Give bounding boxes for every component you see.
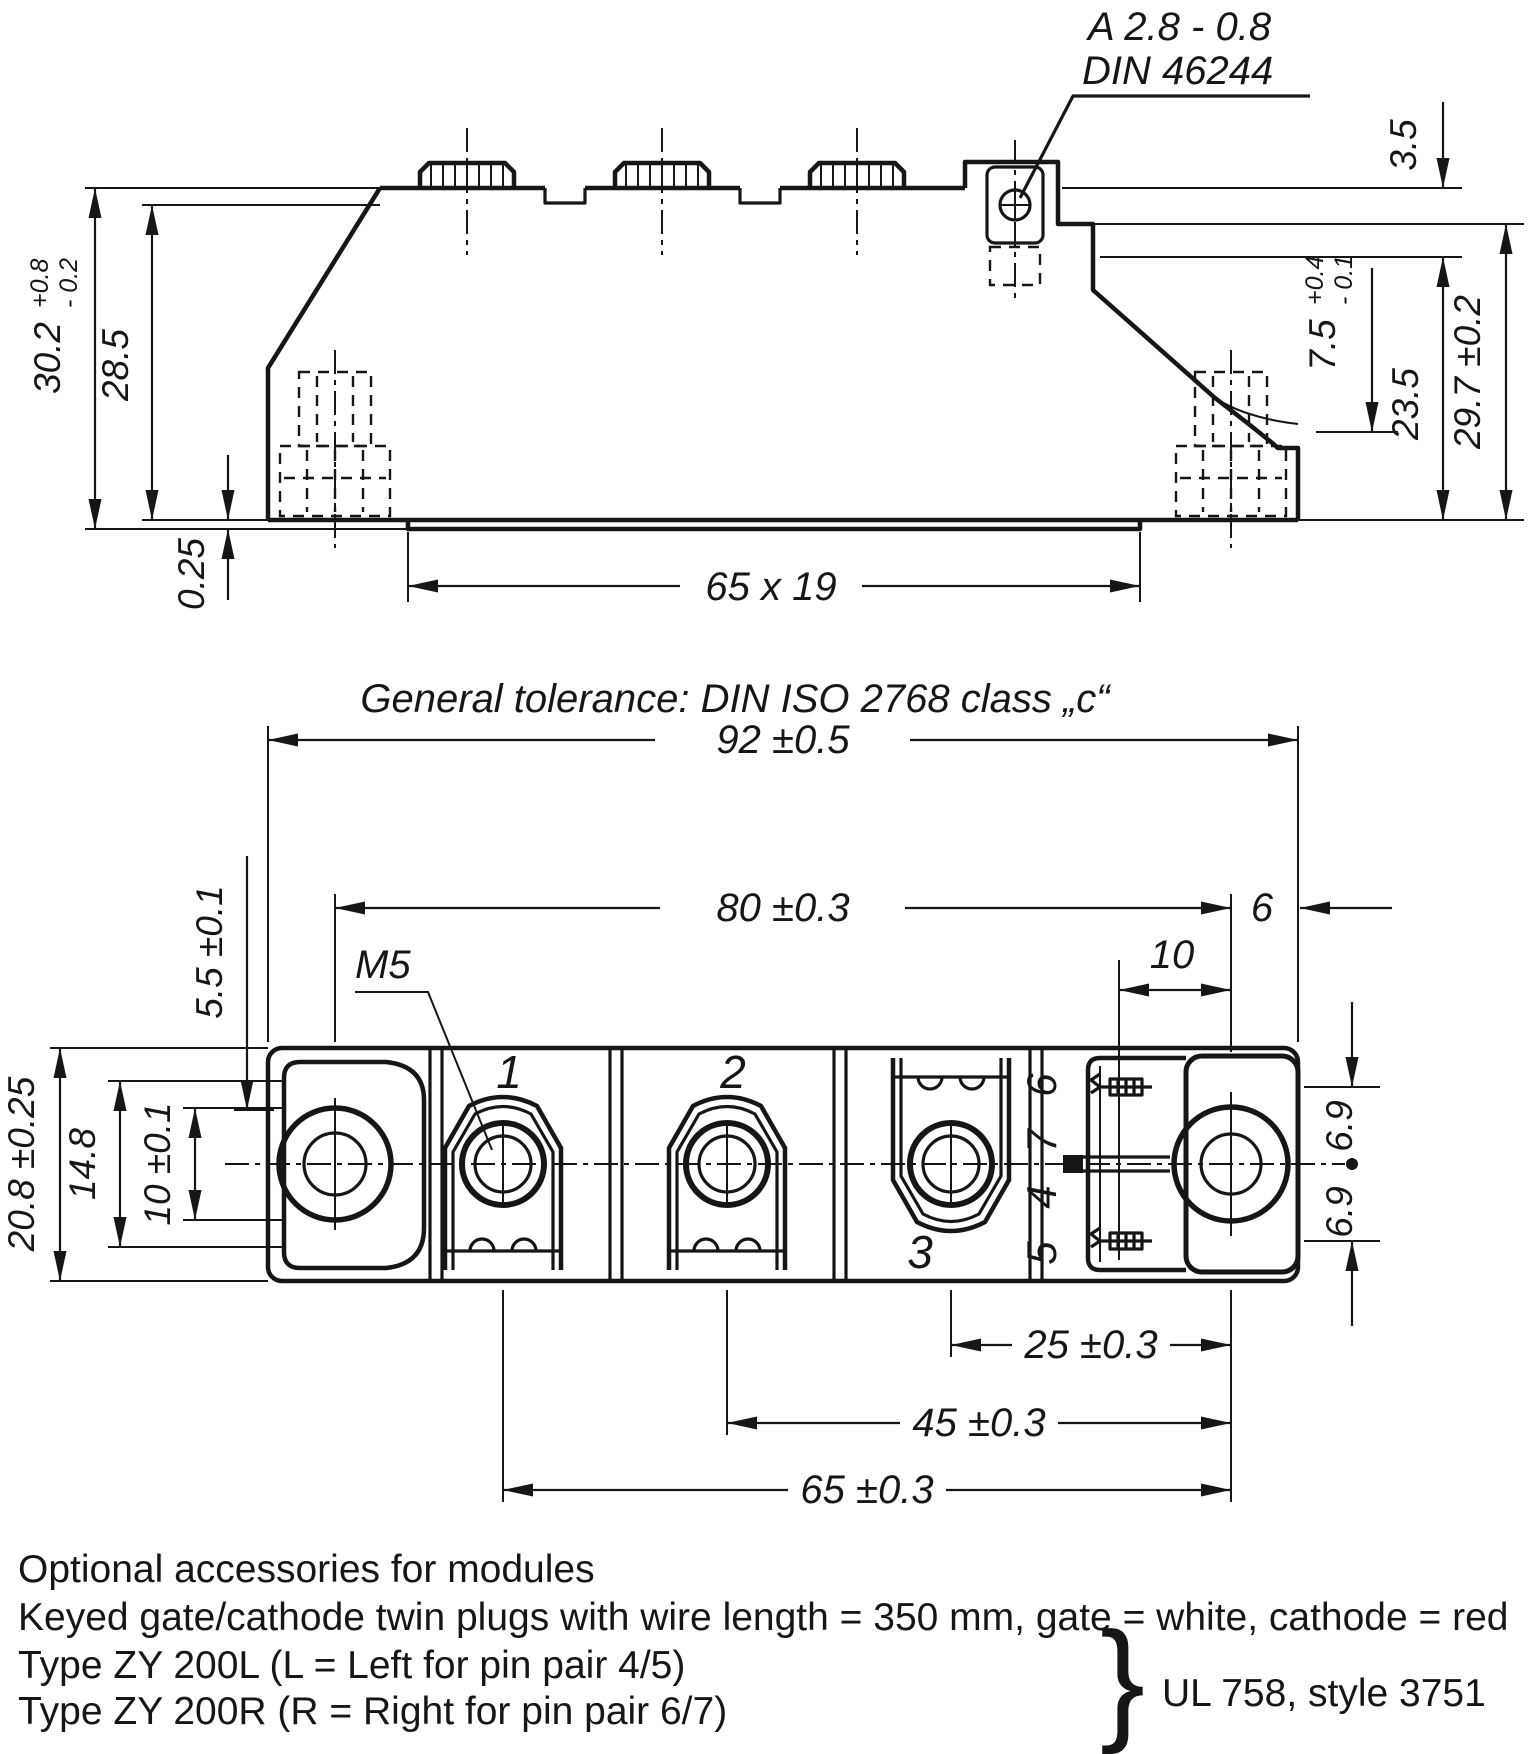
dim-ledge-height: 23.5: [1385, 257, 1450, 520]
note-brace: }: [1100, 1604, 1145, 1754]
side-top-notch-1: [545, 188, 585, 203]
dim-pin-up-value: 6.9: [1319, 1100, 1360, 1151]
dim-pitch-25: 25 ±0.3: [951, 1323, 1231, 1367]
note-line-3: Type ZY 200L (L = Left for pin pair 4/5): [18, 1644, 685, 1687]
dim-height-overall-tol-plus: +0.8: [26, 259, 54, 308]
terminal-1: 1: [445, 1046, 561, 1270]
dim-pin-row: 5.5 ±0.1: [189, 856, 254, 1110]
plan-extension-lines: [50, 726, 1380, 1502]
side-extension-lines: [85, 188, 1524, 602]
side-potting-line: [1212, 396, 1298, 424]
dim-hole-spacing: 80 ±0.3: [335, 886, 1231, 930]
terminal-2-label: 2: [719, 1046, 746, 1098]
general-tolerance-note: General tolerance: DIN ISO 2768 class „c…: [360, 677, 1112, 721]
dim-pitch-65: 65 ±0.3: [503, 1468, 1231, 1512]
callout-line1: A 2.8 - 0.8: [1086, 5, 1272, 49]
dim-pitch-25-value: 25 ±0.3: [1023, 1323, 1157, 1367]
dim-height-overall-value: 30.2: [27, 322, 68, 394]
pin-5-mark: [1100, 1233, 1152, 1249]
note-line-2: Keyed gate/cathode twin plugs with wire …: [18, 1596, 1509, 1639]
dim-height-inner-value: 28.5: [95, 329, 136, 402]
plan-view: 1 2 3: [1, 718, 1392, 1512]
dim-recess-depth-tol-minus: - 0.1: [1330, 255, 1358, 305]
note-line-4: Type ZY 200R (R = Right for pin pair 6/7…: [18, 1690, 727, 1733]
pin-6-label: 6: [1018, 1073, 1065, 1097]
pin-4-label: 4: [1018, 1185, 1065, 1208]
dim-baseplate-step: 0.25: [171, 455, 235, 610]
dim-hole-spacing-value: 80 ±0.3: [716, 886, 849, 930]
dim-height-total-value: 29.7 ±0.2: [1447, 295, 1488, 450]
terminal-clamp-springs: [470, 1239, 536, 1251]
dim-base-area-value: 65 x 19: [705, 565, 836, 609]
dim-slot-len: 14.8: [62, 1081, 127, 1247]
center-dot: [1346, 1158, 1358, 1170]
terminal-cap-1: [420, 128, 514, 255]
dim-width-overall-value: 92 ±0.5: [716, 718, 850, 762]
side-view: A 2.8 - 0.8 DIN 46244 30.2: [26, 5, 1524, 610]
dim-width-overall: 92 ±0.5: [268, 718, 1298, 762]
dim-pin-offset: 10: [1119, 933, 1231, 997]
tab-tip: [1063, 1155, 1083, 1173]
terminal-3: 3: [893, 1058, 1009, 1278]
terminal-cap-3: [810, 128, 904, 255]
technical-drawing-page: A 2.8 - 0.8 DIN 46244 30.2: [0, 0, 1538, 1754]
tab-callout: A 2.8 - 0.8 DIN 46244: [1020, 5, 1310, 198]
dim-recess-depth-tol-plus: +0.4: [1301, 256, 1329, 305]
dim-height-overall: 30.2 +0.8 - 0.2: [26, 188, 102, 529]
dim-baseplate-step-value: 0.25: [171, 538, 212, 610]
callout-leader: [1020, 96, 1073, 198]
dim-slot-width-value: 10 ±0.1: [137, 1102, 178, 1225]
notes-block: Optional accessories for modules Keyed g…: [18, 1548, 1509, 1754]
dim-pin-down-value: 6.9: [1319, 1186, 1360, 1237]
note-line-1: Optional accessories for modules: [18, 1548, 595, 1591]
pin-6-mark: [1100, 1079, 1152, 1095]
dim-pitch-45: 45 ±0.3: [727, 1401, 1231, 1445]
thread-label: M5: [355, 943, 411, 987]
dim-depth-overall-value: 20.8 ±0.25: [1, 1076, 42, 1252]
dim-slot-width: 10 ±0.1: [137, 1102, 202, 1225]
pin-7-label: 7: [1018, 1128, 1065, 1153]
dim-hole-edge-value: 6: [1251, 886, 1274, 930]
dim-pitch-45-value: 45 ±0.3: [912, 1401, 1045, 1445]
dim-ledge-height-value: 23.5: [1385, 368, 1426, 441]
dim-tab-offset: 3.5: [1383, 102, 1450, 188]
module-dimension-drawing: A 2.8 - 0.8 DIN 46244 30.2: [0, 0, 1538, 1754]
dim-base-area: 65 x 19: [408, 565, 1140, 609]
terminal-1-label: 1: [496, 1046, 522, 1098]
dim-height-inner: 28.5: [95, 205, 159, 520]
dim-pitch-65-value: 65 ±0.3: [800, 1468, 933, 1512]
dim-height-total: 29.7 ±0.2: [1447, 224, 1513, 520]
terminal-clamp-springs: [918, 1077, 984, 1089]
connector-key-zigzag-bottom: [1091, 1228, 1100, 1247]
terminal-cap-2: [615, 128, 709, 255]
terminal-3-label: 3: [907, 1226, 933, 1278]
terminal-clamp-springs: [694, 1239, 760, 1251]
terminal-2: 2: [669, 1046, 785, 1270]
dim-depth-overall: 20.8 ±0.25: [1, 1048, 67, 1281]
dim-slot-len-value: 14.8: [62, 1128, 103, 1200]
dim-recess-depth-value: 7.5: [1302, 319, 1343, 371]
right-mounting-lug: [1174, 1056, 1298, 1272]
dim-pin-row-value: 5.5 ±0.1: [189, 885, 230, 1018]
dim-hole-edge: 6: [1251, 886, 1392, 930]
dim-tab-offset-value: 3.5: [1383, 119, 1424, 171]
dim-height-overall-tol-minus: - 0.2: [55, 258, 83, 308]
pin-5-label: 5: [1018, 1241, 1065, 1265]
side-top-notch-2: [740, 188, 780, 203]
callout-line2: DIN 46244: [1082, 49, 1273, 93]
note-ul: UL 758, style 3751: [1162, 1672, 1486, 1715]
dim-pin-offset-value: 10: [1150, 933, 1195, 977]
connector-key-zigzag-top: [1091, 1074, 1100, 1093]
dim-recess-depth: 7.5 +0.4 - 0.1: [1301, 255, 1379, 432]
